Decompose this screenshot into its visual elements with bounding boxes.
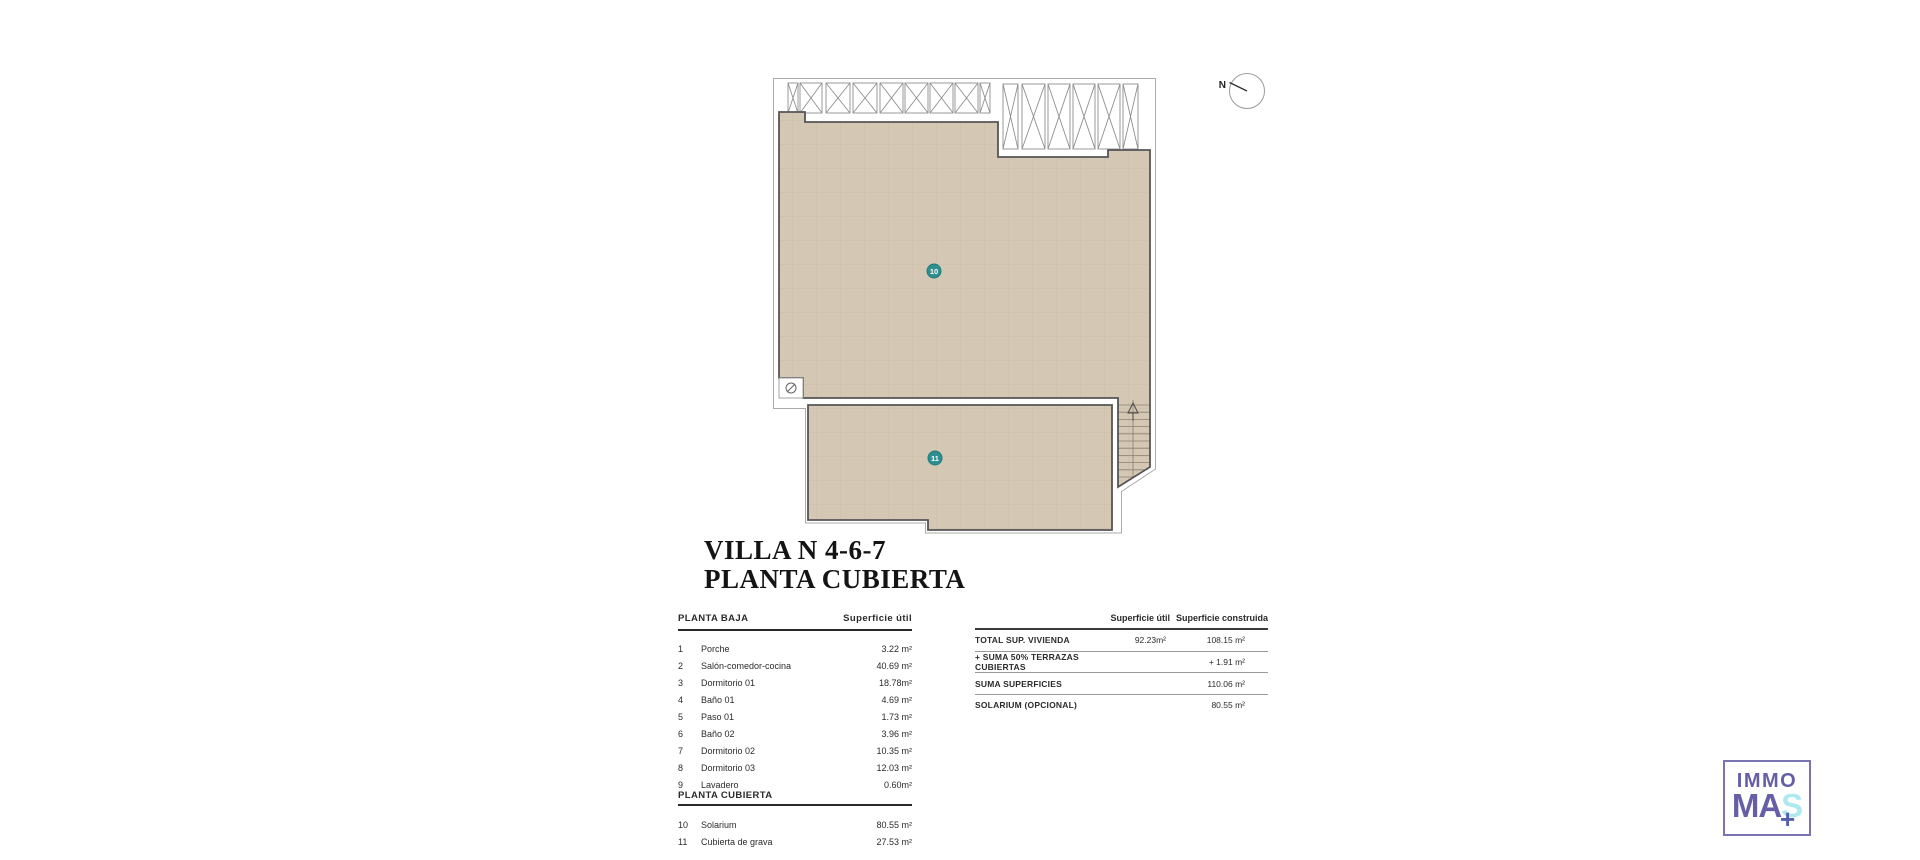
area-row-lbl: Baño 02 [701, 729, 881, 739]
areas-table-value-header: Superficie útil [843, 613, 912, 624]
north-compass-icon: N [1219, 74, 1265, 109]
area-row: 8Dormitorio 0312.03 m² [678, 759, 912, 776]
area-row-val: 4.69 m² [881, 695, 912, 705]
plan-sheet: 10 11 N VILLA N 4-6-7 PLANTA CUBIERTA PL… [0, 0, 1920, 860]
area-row: 6Baño 023.96 m² [678, 725, 912, 742]
area-row-val: 3.96 m² [881, 729, 912, 739]
room-gravel-roof [808, 405, 1112, 530]
summary-row-util: 92.23m² [1108, 635, 1166, 645]
summary-row-construida: 108.15 m² [1166, 635, 1268, 645]
areas-table-section2-rule [678, 804, 912, 806]
area-row-num: 1 [678, 644, 701, 654]
area-row-num: 8 [678, 763, 701, 773]
area-row: 7Dormitorio 0210.35 m² [678, 742, 912, 759]
areas-table-header-rule [678, 629, 912, 631]
summary-row: SUMA SUPERFICIES110.06 m² [975, 673, 1268, 695]
area-row: 3Dormitorio 0118.78m² [678, 674, 912, 691]
summary-col2-header: Superficie construida [1176, 613, 1268, 623]
summary-table-rows: TOTAL SUP. VIVIENDA92.23m²108.15 m²+ SUM… [975, 630, 1268, 716]
area-row-num: 4 [678, 695, 701, 705]
area-row: 2Salón-comedor-cocina40.69 m² [678, 657, 912, 674]
summary-row-label: TOTAL SUP. VIVIENDA [975, 635, 1108, 645]
area-row-lbl: Salón-comedor-cocina [701, 661, 876, 671]
room-marker-11-label: 11 [931, 454, 939, 463]
drain-symbol-icon [779, 378, 803, 398]
summary-row: + SUMA 50% TERRAZAS CUBIERTAS+ 1.91 m² [975, 652, 1268, 674]
area-row-val: 1.73 m² [881, 712, 912, 722]
area-row: 4Baño 014.69 m² [678, 691, 912, 708]
area-row-val: 80.55 m² [876, 820, 912, 830]
room-marker-10: 10 [927, 264, 941, 278]
summary-row-label: SOLARIUM (OPCIONAL) [975, 700, 1108, 710]
area-row-num: 2 [678, 661, 701, 671]
area-row-num: 10 [678, 820, 701, 830]
logo-plus-icon: + [1780, 806, 1795, 832]
area-row-val: 10.35 m² [876, 746, 912, 756]
summary-row: TOTAL SUP. VIVIENDA92.23m²108.15 m² [975, 630, 1268, 652]
area-row-lbl: Dormitorio 01 [701, 678, 879, 688]
area-row-val: 3.22 m² [881, 644, 912, 654]
area-row-num: 7 [678, 746, 701, 756]
summary-col1-header: Superficie útil [1110, 613, 1170, 623]
area-row: 11Cubierta de grava27.53 m² [678, 834, 912, 852]
logo-line2-ma: MA [1732, 787, 1781, 824]
area-row-lbl: Dormitorio 02 [701, 746, 876, 756]
area-row: 5Paso 011.73 m² [678, 708, 912, 725]
area-row-lbl: Porche [701, 644, 881, 654]
summary-row: SOLARIUM (OPCIONAL)80.55 m² [975, 695, 1268, 716]
immo-mas-logo: IMMO MAS + [1723, 760, 1811, 836]
plan-title-line1: VILLA N 4-6-7 [704, 536, 965, 565]
area-row-lbl: Lavadero [701, 780, 884, 790]
logo-line2: MAS [1725, 791, 1809, 821]
summary-row-construida: 110.06 m² [1166, 679, 1268, 689]
compass-north-label: N [1219, 80, 1226, 91]
area-row-val: 27.53 m² [876, 837, 912, 847]
summary-row-construida: + 1.91 m² [1166, 657, 1268, 667]
area-row-val: 40.69 m² [876, 661, 912, 671]
room-marker-11: 11 [928, 451, 942, 465]
summary-row-label: + SUMA 50% TERRAZAS CUBIERTAS [975, 652, 1108, 672]
areas-table-section1-header: PLANTA BAJA [678, 613, 748, 624]
areas-table-section2-rows: 10Solarium80.55 m²11Cubierta de grava27.… [678, 816, 912, 851]
area-row-lbl: Dormitorio 03 [701, 763, 876, 773]
area-row-val: 0.60m² [884, 780, 912, 790]
area-row-num: 11 [678, 837, 701, 847]
area-row-num: 9 [678, 780, 701, 790]
area-row-num: 5 [678, 712, 701, 722]
summary-row-label: SUMA SUPERFICIES [975, 679, 1108, 689]
area-row: 1Porche3.22 m² [678, 640, 912, 657]
summary-row-construida: 80.55 m² [1166, 700, 1268, 710]
area-row-val: 12.03 m² [876, 763, 912, 773]
areas-table-section1-rows: 1Porche3.22 m²2Salón-comedor-cocina40.69… [678, 640, 912, 793]
room-marker-10-label: 10 [930, 267, 938, 276]
plan-title: VILLA N 4-6-7 PLANTA CUBIERTA [704, 536, 965, 594]
plan-title-line2: PLANTA CUBIERTA [704, 565, 965, 594]
area-row-num: 6 [678, 729, 701, 739]
area-row-lbl: Cubierta de grava [701, 837, 876, 847]
area-row: 10Solarium80.55 m² [678, 816, 912, 834]
area-row-num: 3 [678, 678, 701, 688]
area-row-lbl: Baño 01 [701, 695, 881, 705]
area-row-lbl: Solarium [701, 820, 876, 830]
floor-plan-drawing: 10 11 N [770, 55, 1270, 540]
areas-table-section2-header: PLANTA CUBIERTA [678, 790, 772, 801]
area-row-lbl: Paso 01 [701, 712, 881, 722]
area-row-val: 18.78m² [879, 678, 912, 688]
